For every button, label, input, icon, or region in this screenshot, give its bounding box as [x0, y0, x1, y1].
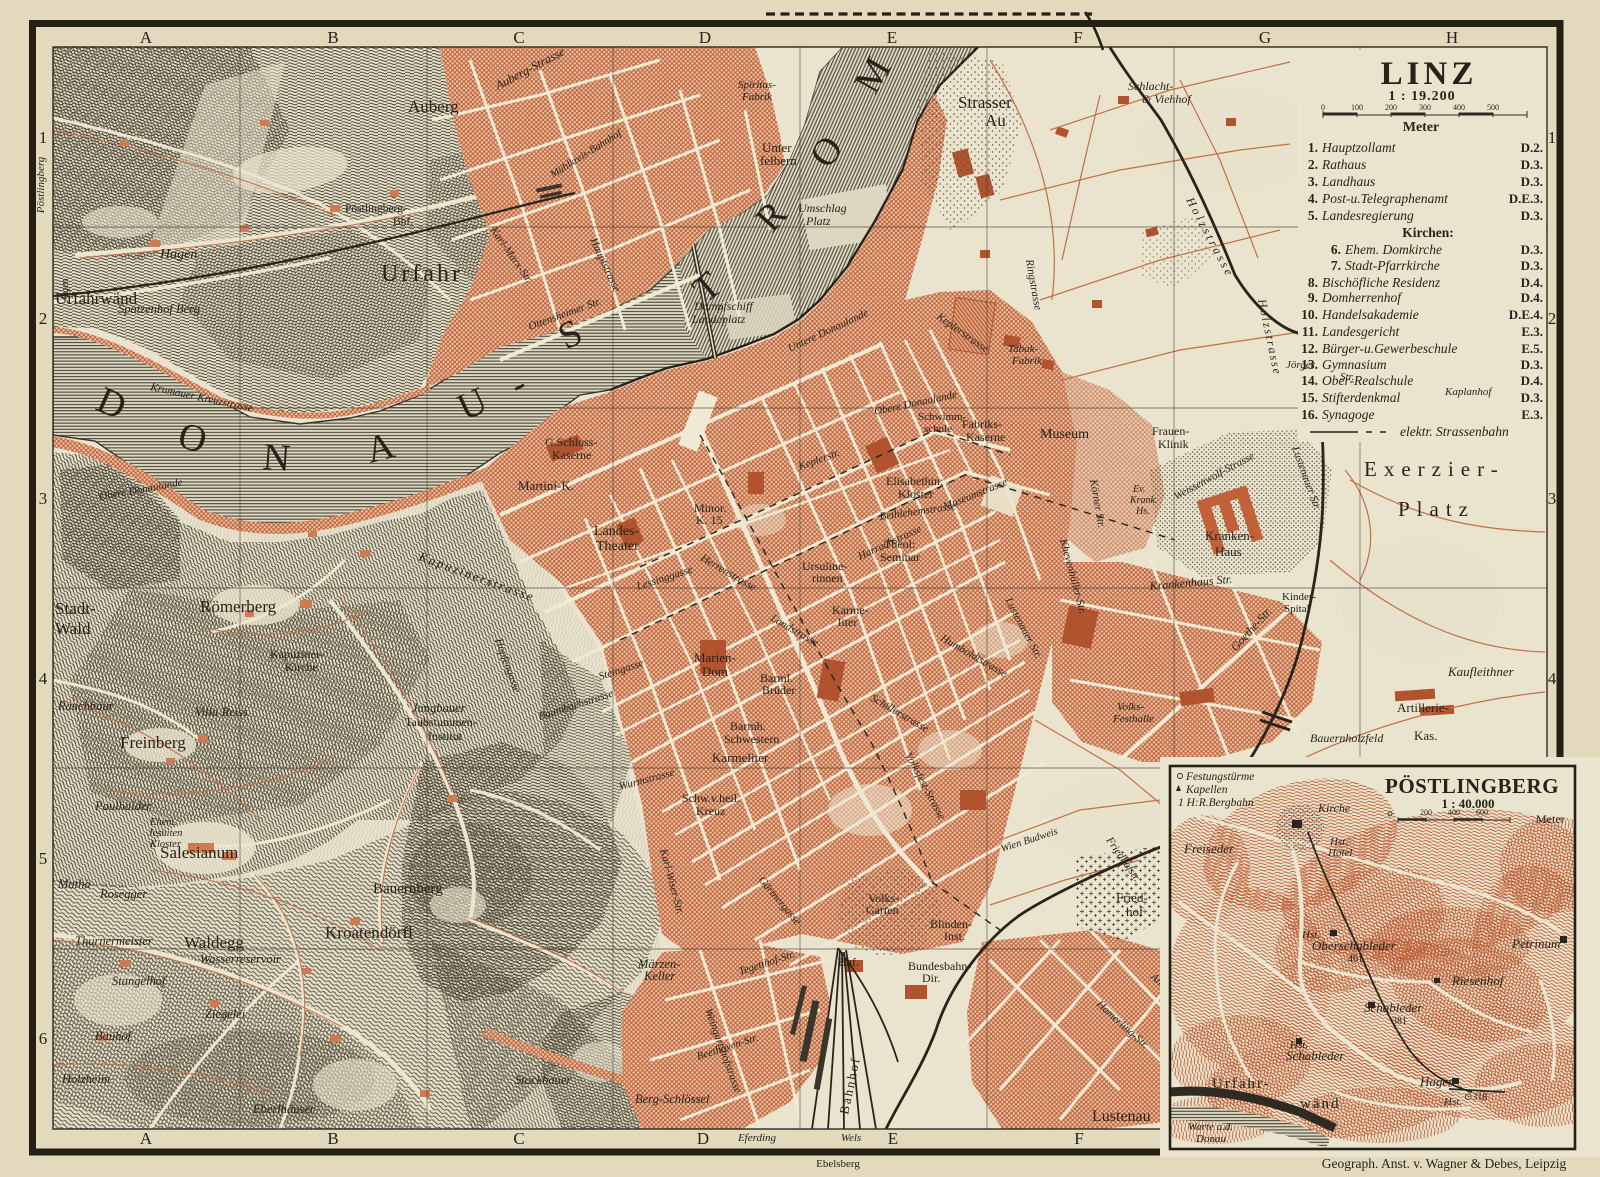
svg-text:Urfahr: Urfahr — [381, 261, 463, 287]
svg-text:D.4.: D.4. — [1521, 373, 1543, 388]
svg-text:Dom: Dom — [702, 664, 728, 679]
svg-text:Waldegg: Waldegg — [184, 933, 244, 952]
svg-text:G.Schloss-: G.Schloss- — [545, 435, 597, 449]
svg-text:Donau: Donau — [1195, 1133, 1226, 1145]
svg-text:Synagoge: Synagoge — [1322, 407, 1374, 422]
svg-text:Kirche: Kirche — [1317, 801, 1351, 815]
svg-text:E: E — [888, 1129, 898, 1148]
svg-text:D: D — [699, 28, 711, 47]
svg-text:Kinder-: Kinder- — [1282, 591, 1316, 603]
svg-text:K. 15: K. 15 — [696, 513, 723, 527]
svg-text:⊙318: ⊙318 — [1464, 1092, 1487, 1103]
svg-text:Festhalle: Festhalle — [1112, 713, 1154, 725]
svg-text:Paulhaider: Paulhaider — [94, 799, 151, 813]
svg-text:Thurnermeister: Thurnermeister — [75, 934, 153, 948]
svg-text:felbern: felbern — [760, 153, 797, 168]
svg-text:600: 600 — [1476, 808, 1488, 817]
svg-text:8.: 8. — [1308, 275, 1318, 290]
svg-text:Landesgericht: Landesgericht — [1321, 324, 1400, 339]
svg-text:3.: 3. — [1308, 174, 1318, 189]
svg-text:Römerberg: Römerberg — [200, 597, 277, 616]
svg-text:9.: 9. — [1308, 290, 1318, 305]
svg-text:N: N — [261, 436, 291, 480]
svg-text:Schw.v.heil.: Schw.v.heil. — [682, 791, 740, 805]
svg-text:Hs.: Hs. — [1135, 506, 1150, 517]
svg-text:Eferding: Eferding — [737, 1132, 777, 1144]
svg-text:Holzheim: Holzheim — [61, 1072, 110, 1086]
svg-text:4: 4 — [1548, 669, 1557, 688]
svg-text:Institut: Institut — [428, 729, 463, 743]
svg-text:E.5.: E.5. — [1521, 341, 1543, 356]
svg-text:E.3.: E.3. — [1521, 324, 1543, 339]
svg-text:Freiseder: Freiseder — [1183, 841, 1235, 856]
svg-text:Spatzenhof Berg: Spatzenhof Berg — [118, 302, 200, 316]
svg-text:Exerzier-: Exerzier- — [1364, 457, 1505, 481]
svg-text:Museum: Museum — [1040, 427, 1089, 442]
svg-text:Kroatendörfl: Kroatendörfl — [325, 923, 413, 942]
svg-text:Kapuziner-: Kapuziner- — [270, 647, 324, 661]
svg-text:Theater: Theater — [596, 539, 639, 554]
svg-text:schule: schule — [924, 423, 952, 435]
svg-text:D.3.: D.3. — [1521, 390, 1543, 405]
svg-text:Handelsakademie: Handelsakademie — [1321, 307, 1419, 322]
svg-text:461: 461 — [1348, 954, 1363, 965]
svg-text:B: B — [327, 28, 338, 47]
svg-text:Ober-Realschule: Ober-Realschule — [1322, 373, 1413, 388]
svg-text:Geograph. Anst. v. Wagner & De: Geograph. Anst. v. Wagner & Debes, Leipz… — [1322, 1156, 1567, 1171]
svg-text:Jesuiten: Jesuiten — [148, 828, 182, 839]
svg-text:Kaserne: Kaserne — [966, 430, 1005, 444]
svg-text:Platz: Platz — [1398, 497, 1475, 521]
svg-text:Bauernholzfeld: Bauernholzfeld — [1310, 731, 1384, 745]
svg-text:Haus: Haus — [1215, 544, 1242, 559]
svg-text:Petrinum: Petrinum — [1511, 936, 1560, 951]
svg-text:Garten: Garten — [866, 903, 899, 917]
svg-text:16.: 16. — [1301, 407, 1318, 422]
svg-text:Jörger: Jörger — [1286, 359, 1316, 371]
svg-text:4.: 4. — [1308, 191, 1318, 206]
svg-text:1 H:R.Bergbahn: 1 H:R.Bergbahn — [1178, 797, 1254, 809]
svg-text:liter: liter — [838, 615, 857, 629]
svg-text:Dir.: Dir. — [922, 971, 940, 985]
svg-text:Platz: Platz — [805, 214, 831, 228]
svg-text:C: C — [513, 1129, 524, 1148]
svg-text:Hauptzollamt: Hauptzollamt — [1321, 140, 1397, 155]
svg-text:10.: 10. — [1301, 307, 1318, 322]
svg-text:D: D — [697, 1129, 709, 1148]
svg-text:Lustenau: Lustenau — [1092, 1108, 1151, 1125]
svg-text:Kaserne: Kaserne — [552, 448, 591, 462]
svg-text:14.: 14. — [1301, 373, 1318, 388]
svg-text:3: 3 — [1548, 489, 1557, 508]
svg-text:Bauhof: Bauhof — [95, 1029, 133, 1043]
svg-text:Urfahr-: Urfahr- — [1212, 1076, 1271, 1092]
svg-text:Pöstlingberg: Pöstlingberg — [35, 156, 47, 214]
svg-text:Riesenhof: Riesenhof — [1451, 973, 1506, 988]
svg-text:7.: 7. — [1331, 258, 1341, 273]
svg-text:Gymnasium: Gymnasium — [1322, 357, 1387, 372]
svg-text:6.: 6. — [1331, 242, 1341, 257]
svg-text:Bauernberg: Bauernberg — [373, 881, 443, 897]
svg-text:Fabrik: Fabrik — [741, 91, 773, 103]
svg-text:D.3.: D.3. — [1521, 357, 1543, 372]
svg-text:Landhaus: Landhaus — [1321, 174, 1375, 189]
svg-text:Meter: Meter — [1403, 120, 1440, 135]
svg-text:Kas.: Kas. — [1414, 728, 1437, 743]
svg-text:C: C — [513, 28, 524, 47]
svg-text:Bürger-u.Gewerbeschule: Bürger-u.Gewerbeschule — [1322, 341, 1457, 356]
svg-text:Stangelhof: Stangelhof — [112, 974, 167, 988]
svg-text:100: 100 — [1351, 103, 1363, 112]
svg-text:500: 500 — [1487, 103, 1499, 112]
svg-text:Ev.: Ev. — [1132, 484, 1145, 495]
svg-text:D.4.: D.4. — [1521, 275, 1543, 290]
svg-text:Karmeliter: Karmeliter — [712, 750, 769, 765]
svg-text:D.3.: D.3. — [1521, 157, 1543, 172]
svg-text:PÖSTLINGBERG: PÖSTLINGBERG — [1385, 774, 1559, 798]
svg-text:D.E.3.: D.E.3. — [1509, 191, 1543, 206]
svg-text:Wels: Wels — [841, 1132, 861, 1144]
svg-text:Martini-K.: Martini-K. — [518, 478, 574, 493]
svg-text:6: 6 — [39, 1029, 48, 1048]
svg-text:Stockbauer: Stockbauer — [515, 1073, 571, 1087]
svg-text:Wald: Wald — [55, 619, 91, 638]
svg-text:Fabrik: Fabrik — [1011, 355, 1043, 367]
svg-text:300: 300 — [1419, 103, 1431, 112]
svg-text:Festungstürme: Festungstürme — [1185, 771, 1254, 783]
svg-text:Kaplanhof: Kaplanhof — [1444, 386, 1493, 398]
svg-text:Klinik: Klinik — [1158, 437, 1189, 451]
svg-text:Jungbauer: Jungbauer — [412, 701, 466, 715]
svg-text:Freinberg: Freinberg — [120, 733, 186, 752]
svg-text:E: E — [887, 28, 897, 47]
svg-text:G: G — [1259, 28, 1271, 47]
svg-text:1 : 19.200: 1 : 19.200 — [1388, 89, 1455, 104]
svg-text:400: 400 — [1453, 103, 1465, 112]
svg-text:D.2.: D.2. — [1521, 140, 1543, 155]
svg-text:Schableder: Schableder — [1364, 1000, 1423, 1015]
svg-text:2: 2 — [1548, 309, 1557, 328]
svg-text:Taubstummen-: Taubstummen- — [405, 715, 477, 729]
svg-text:11.: 11. — [1302, 324, 1318, 339]
svg-text:Schlacht-: Schlacht- — [1128, 79, 1173, 93]
svg-text:Eberlhäuser: Eberlhäuser — [252, 1102, 315, 1116]
svg-text:0: 0 — [1321, 103, 1325, 112]
svg-text:Ebelsberg: Ebelsberg — [816, 1158, 860, 1170]
svg-text:Bischöfliche Residenz: Bischöfliche Residenz — [1322, 275, 1441, 290]
svg-text:F: F — [1074, 1129, 1083, 1148]
svg-text:Meter: Meter — [1536, 812, 1565, 826]
svg-text:Seminar: Seminar — [880, 550, 920, 564]
svg-text:12.: 12. — [1301, 341, 1318, 356]
svg-text:H: H — [1446, 28, 1458, 47]
svg-text:Spital: Spital — [1284, 603, 1310, 615]
svg-text:Auberg: Auberg — [408, 97, 459, 116]
svg-text:& Viehhof: & Viehhof — [1142, 92, 1192, 106]
svg-text:Strasser: Strasser — [958, 93, 1012, 112]
svg-text:D.4.: D.4. — [1521, 290, 1543, 305]
svg-text:hof: hof — [1126, 904, 1144, 919]
svg-text:1: 1 — [1548, 128, 1557, 147]
svg-text:Krank.: Krank. — [1129, 495, 1158, 506]
svg-text:15.: 15. — [1301, 390, 1318, 405]
svg-text:Str.: Str. — [1340, 371, 1354, 383]
svg-text:Wasserreservoir: Wasserreservoir — [200, 952, 281, 966]
svg-text:Rosegger: Rosegger — [99, 887, 147, 901]
svg-text:E.3.: E.3. — [1521, 407, 1543, 422]
svg-text:Bhf.: Bhf. — [838, 955, 859, 969]
svg-text:Stifterdenkmal: Stifterdenkmal — [1322, 390, 1400, 405]
svg-text:Fabriks-: Fabriks- — [962, 417, 1002, 431]
svg-text:Schableder: Schableder — [1286, 1048, 1345, 1063]
svg-text:1: 1 — [39, 128, 48, 147]
svg-text:F: F — [1073, 28, 1082, 47]
svg-text:Fried-: Fried- — [1116, 890, 1148, 905]
svg-text:Kloster: Kloster — [149, 839, 182, 850]
svg-text:200: 200 — [1385, 103, 1397, 112]
svg-text:rinnen: rinnen — [812, 571, 843, 585]
svg-text:Au: Au — [985, 111, 1006, 130]
svg-text:2: 2 — [39, 309, 48, 328]
svg-text:200: 200 — [1420, 808, 1432, 817]
svg-text:Stadt-Pfarrkirche: Stadt-Pfarrkirche — [1345, 258, 1440, 273]
svg-text:400: 400 — [1448, 808, 1460, 817]
svg-text:Mathä: Mathä — [57, 877, 91, 891]
svg-text:Hst.: Hst. — [1443, 1096, 1462, 1108]
svg-text:Kapellen: Kapellen — [1185, 784, 1228, 796]
svg-text:4: 4 — [39, 669, 48, 688]
svg-text:Kirche: Kirche — [285, 660, 318, 674]
svg-text:Bhf.: Bhf. — [393, 216, 413, 228]
svg-text:D.3.: D.3. — [1521, 242, 1543, 257]
svg-text:Umschlag: Umschlag — [798, 201, 847, 215]
svg-text:3: 3 — [39, 489, 48, 508]
svg-text:Post-u.Telegraphenamt: Post-u.Telegraphenamt — [1321, 191, 1449, 206]
svg-text:Ehem. Domkirche: Ehem. Domkirche — [1344, 242, 1442, 257]
svg-text:Domherrenhof: Domherrenhof — [1321, 290, 1403, 305]
svg-text:Kirchen:: Kirchen: — [1402, 225, 1454, 240]
svg-text:Pöstlingberg-: Pöstlingberg- — [345, 203, 407, 215]
svg-text:Landesregierung: Landesregierung — [1321, 208, 1414, 223]
svg-text:D.3.: D.3. — [1521, 174, 1543, 189]
svg-text:D.E.4.: D.E.4. — [1509, 307, 1543, 322]
svg-text:Stadt-: Stadt- — [55, 599, 96, 618]
svg-text:Ziegelei: Ziegelei — [205, 1007, 246, 1021]
svg-text:Spiritus-: Spiritus- — [738, 79, 776, 91]
svg-text:elektr. Strassenbahn: elektr. Strassenbahn — [1400, 424, 1509, 439]
svg-text:D.3.: D.3. — [1521, 208, 1543, 223]
svg-text:A: A — [140, 1129, 153, 1148]
svg-text:Inst.: Inst. — [944, 929, 965, 943]
svg-text:Dampfschiff: Dampfschiff — [693, 299, 754, 313]
svg-text:Tabak-: Tabak- — [1008, 343, 1038, 355]
svg-text:Artillerie-: Artillerie- — [1397, 700, 1449, 715]
svg-text:Hagen: Hagen — [1419, 1074, 1455, 1089]
svg-text:Schwestern: Schwestern — [724, 732, 779, 746]
svg-text:Barmh.: Barmh. — [730, 719, 766, 733]
svg-text:Rauchbaur: Rauchbaur — [57, 699, 114, 713]
svg-text:1.: 1. — [1308, 140, 1318, 155]
svg-text:Ehem.: Ehem. — [149, 817, 177, 828]
svg-text:381: 381 — [1392, 1016, 1407, 1027]
svg-text:A: A — [140, 28, 153, 47]
svg-text:Villa Reiss: Villa Reiss — [195, 705, 248, 719]
svg-text:Hotel: Hotel — [1327, 847, 1352, 859]
svg-text:Kaufleithner: Kaufleithner — [1447, 664, 1515, 679]
svg-text:Kreuz: Kreuz — [696, 804, 725, 818]
svg-text:Landeplatz: Landeplatz — [691, 312, 746, 326]
svg-text:Kloster: Kloster — [898, 487, 933, 501]
svg-text:Volks-: Volks- — [1117, 701, 1144, 713]
svg-text:D.3.: D.3. — [1521, 258, 1543, 273]
svg-text:Schwimm-: Schwimm- — [918, 411, 967, 423]
svg-text:B: B — [327, 1129, 338, 1148]
svg-text:Warte a.d.: Warte a.d. — [1188, 1121, 1233, 1133]
svg-text:Berg-Schlössel: Berg-Schlössel — [635, 1092, 710, 1106]
svg-text:5.: 5. — [1308, 208, 1318, 223]
svg-text:Elisabethin:: Elisabethin: — [886, 474, 943, 488]
svg-text:LINZ: LINZ — [1381, 56, 1478, 92]
svg-text:Hagen: Hagen — [159, 247, 197, 262]
svg-text:Rathaus: Rathaus — [1321, 157, 1366, 172]
svg-text:Brüder: Brüder — [762, 683, 795, 697]
svg-text:Frauen-: Frauen- — [1152, 424, 1189, 438]
svg-text:Kranken-: Kranken- — [1205, 528, 1254, 543]
svg-text:wänd: wänd — [1300, 1096, 1341, 1112]
svg-text:5: 5 — [39, 849, 48, 868]
svg-text:2.: 2. — [1308, 157, 1318, 172]
svg-text:Landes-: Landes- — [594, 524, 639, 539]
svg-text:Marien-: Marien- — [694, 650, 736, 665]
svg-text:Keller: Keller — [643, 969, 675, 983]
svg-text:Oberschableder: Oberschableder — [1312, 938, 1397, 953]
